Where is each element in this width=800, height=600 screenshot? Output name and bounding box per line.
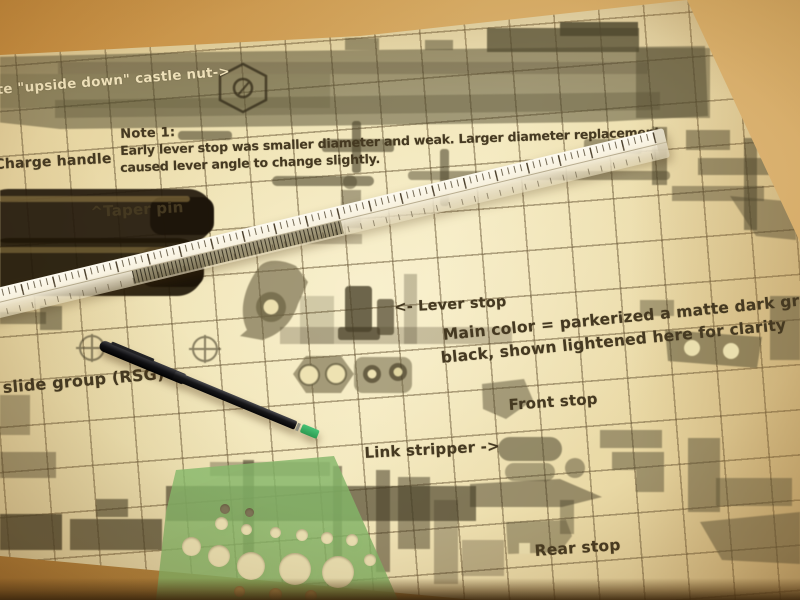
stencil-hole	[364, 554, 376, 566]
stencil-hole	[245, 508, 254, 517]
stencil-hole	[321, 532, 333, 544]
stencil-hole	[237, 552, 265, 580]
stencil-hole	[208, 545, 230, 567]
stencil-hole	[182, 537, 201, 556]
stencil-hole	[296, 529, 308, 541]
stencil-hole	[346, 534, 358, 546]
stencil-hole	[215, 517, 228, 530]
label-note1-title: Note 1:	[120, 125, 176, 142]
desk-edge-shadow	[0, 578, 800, 600]
photo-of-parts-diagram: Latch pin te "upside down" castle nut-> …	[0, 0, 800, 600]
diagram-paper: Latch pin te "upside down" castle nut-> …	[0, 0, 800, 600]
stencil-hole	[220, 504, 230, 514]
stencil-hole	[241, 524, 252, 535]
stencil-hole	[270, 527, 281, 538]
